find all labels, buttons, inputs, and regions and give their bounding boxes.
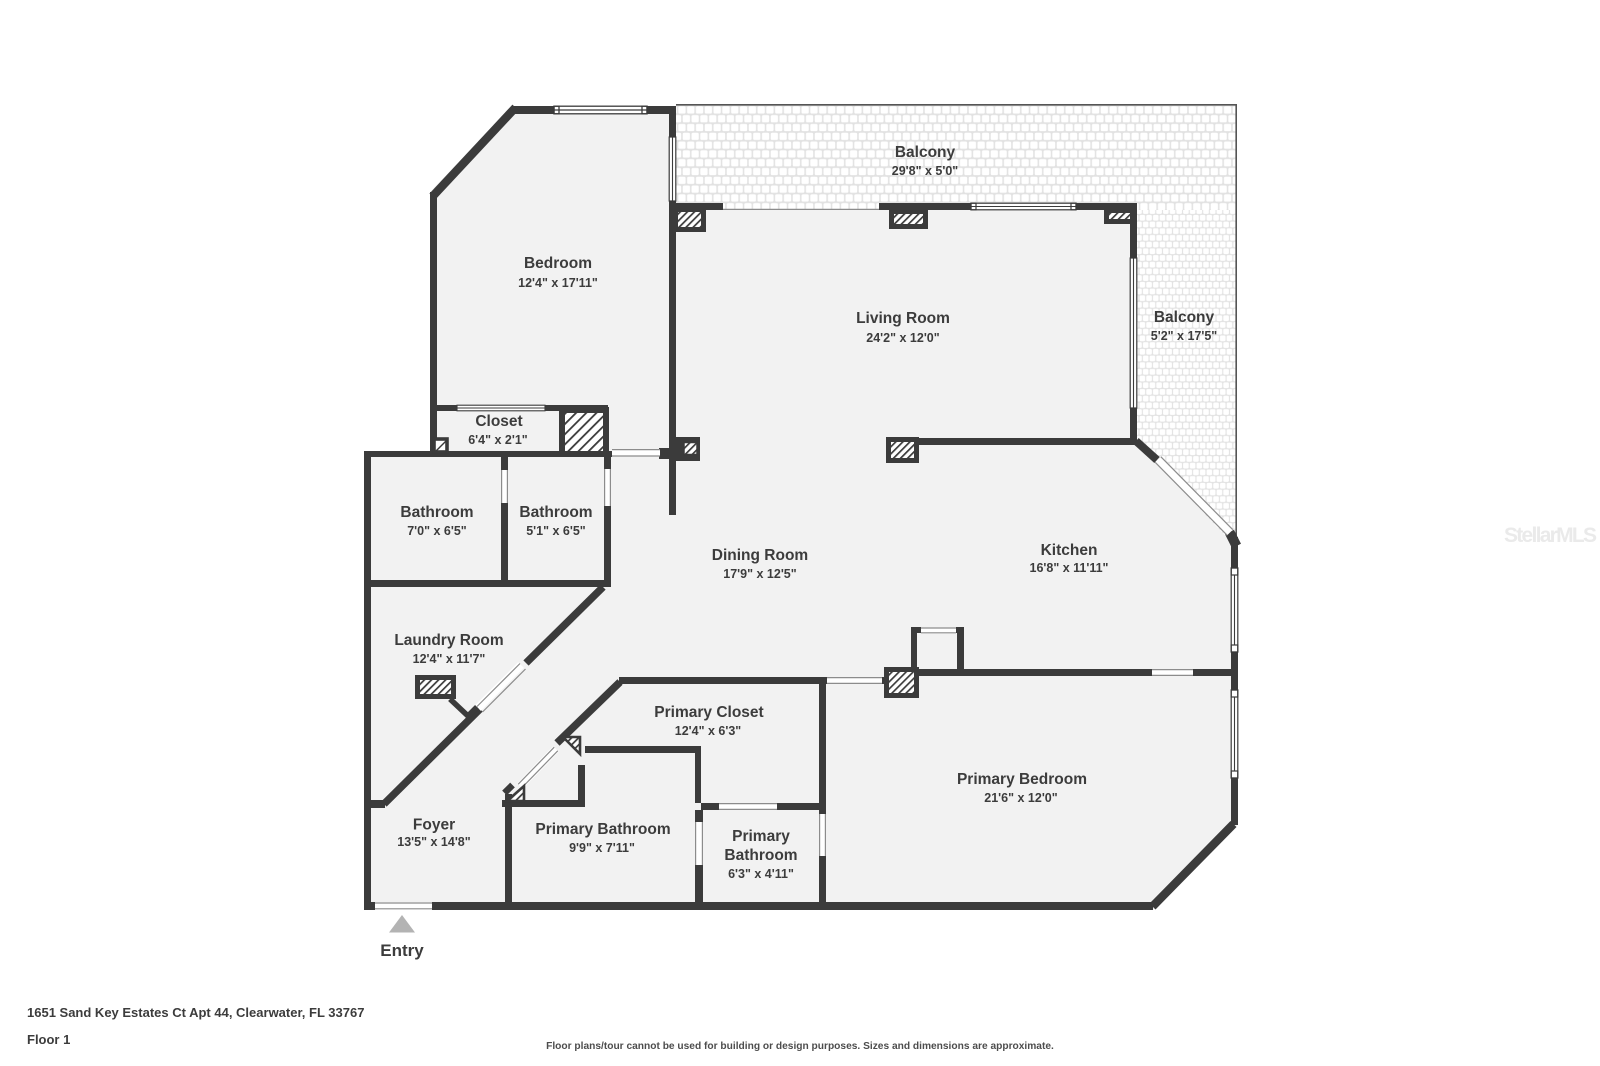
svg-text:Primary Bedroom: Primary Bedroom <box>957 771 1087 788</box>
svg-text:6'3" x 4'11": 6'3" x 4'11" <box>728 867 794 881</box>
svg-text:Laundry Room: Laundry Room <box>394 632 503 649</box>
svg-text:12'4" x 6'3": 12'4" x 6'3" <box>675 724 742 738</box>
svg-text:Closet: Closet <box>475 413 522 430</box>
svg-text:Dining Room: Dining Room <box>712 547 808 564</box>
svg-text:Floor 1: Floor 1 <box>27 1032 70 1047</box>
svg-text:5'2" x 17'5": 5'2" x 17'5" <box>1151 329 1218 343</box>
svg-text:Bathroom: Bathroom <box>400 504 473 521</box>
svg-text:Primary Bathroom: Primary Bathroom <box>535 821 670 838</box>
svg-text:7'0" x 6'5": 7'0" x 6'5" <box>407 524 467 538</box>
svg-text:12'4" x 11'7": 12'4" x 11'7" <box>413 652 486 666</box>
svg-text:Bathroom: Bathroom <box>519 504 592 521</box>
svg-text:16'8" x 11'11": 16'8" x 11'11" <box>1030 561 1109 575</box>
svg-text:29'8" x 5'0": 29'8" x 5'0" <box>892 164 959 178</box>
svg-text:Primary Closet: Primary Closet <box>654 704 763 721</box>
svg-text:Living Room: Living Room <box>856 310 950 327</box>
svg-text:Balcony: Balcony <box>1154 309 1215 326</box>
svg-text:17'9" x 12'5": 17'9" x 12'5" <box>723 567 796 581</box>
svg-text:Floor plans/tour cannot be use: Floor plans/tour cannot be used for buil… <box>546 1041 1054 1052</box>
svg-text:1651 Sand Key Estates Ct Apt 4: 1651 Sand Key Estates Ct Apt 44, Clearwa… <box>27 1005 364 1020</box>
svg-text:21'6" x 12'0": 21'6" x 12'0" <box>984 791 1057 805</box>
svg-text:Entry: Entry <box>380 941 424 960</box>
svg-text:6'4" x 2'1": 6'4" x 2'1" <box>468 433 528 447</box>
svg-text:Balcony: Balcony <box>895 144 956 161</box>
svg-text:Foyer: Foyer <box>413 817 455 834</box>
svg-text:24'2" x 12'0": 24'2" x 12'0" <box>866 331 939 345</box>
svg-text:5'1" x 6'5": 5'1" x 6'5" <box>526 524 586 538</box>
svg-text:Bedroom: Bedroom <box>524 255 592 272</box>
svg-text:13'5" x 14'8": 13'5" x 14'8" <box>397 835 470 849</box>
svg-text:12'4" x 17'11": 12'4" x 17'11" <box>518 276 598 290</box>
svg-text:StellarMLS: StellarMLS <box>1504 524 1597 547</box>
svg-text:Primary: Primary <box>732 828 790 845</box>
svg-text:Bathroom: Bathroom <box>724 847 797 864</box>
svg-text:Kitchen: Kitchen <box>1041 542 1098 559</box>
svg-text:9'9" x 7'11": 9'9" x 7'11" <box>569 841 635 855</box>
